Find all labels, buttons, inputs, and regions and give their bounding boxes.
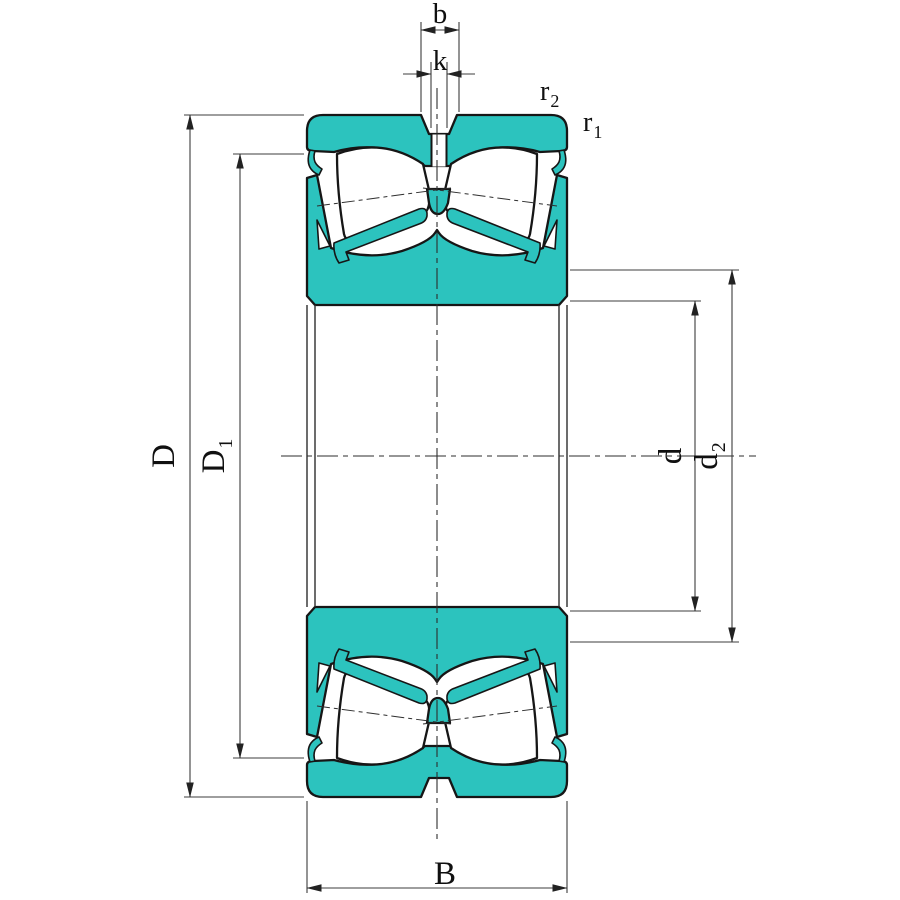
lubrication-hole	[431, 134, 446, 167]
cage-hook-right	[552, 150, 566, 175]
label-chamfer-inner: r1	[583, 107, 602, 142]
label-chamfer-outer: r2	[540, 76, 559, 111]
label-hole-width: k	[433, 45, 448, 77]
bearing-diagram: D D1 d d2 b k B r2 r1	[0, 0, 900, 900]
cage-hook-left	[308, 150, 322, 175]
label-groove-width: b	[433, 0, 448, 30]
label-width: B	[434, 856, 456, 892]
label-bore-diameter: d	[653, 447, 689, 464]
label-outer-diameter: D	[146, 444, 182, 468]
label-recess-diameter: D1	[196, 439, 237, 474]
bearing-diagram-page: D D1 d d2 b k B r2 r1	[0, 0, 900, 900]
